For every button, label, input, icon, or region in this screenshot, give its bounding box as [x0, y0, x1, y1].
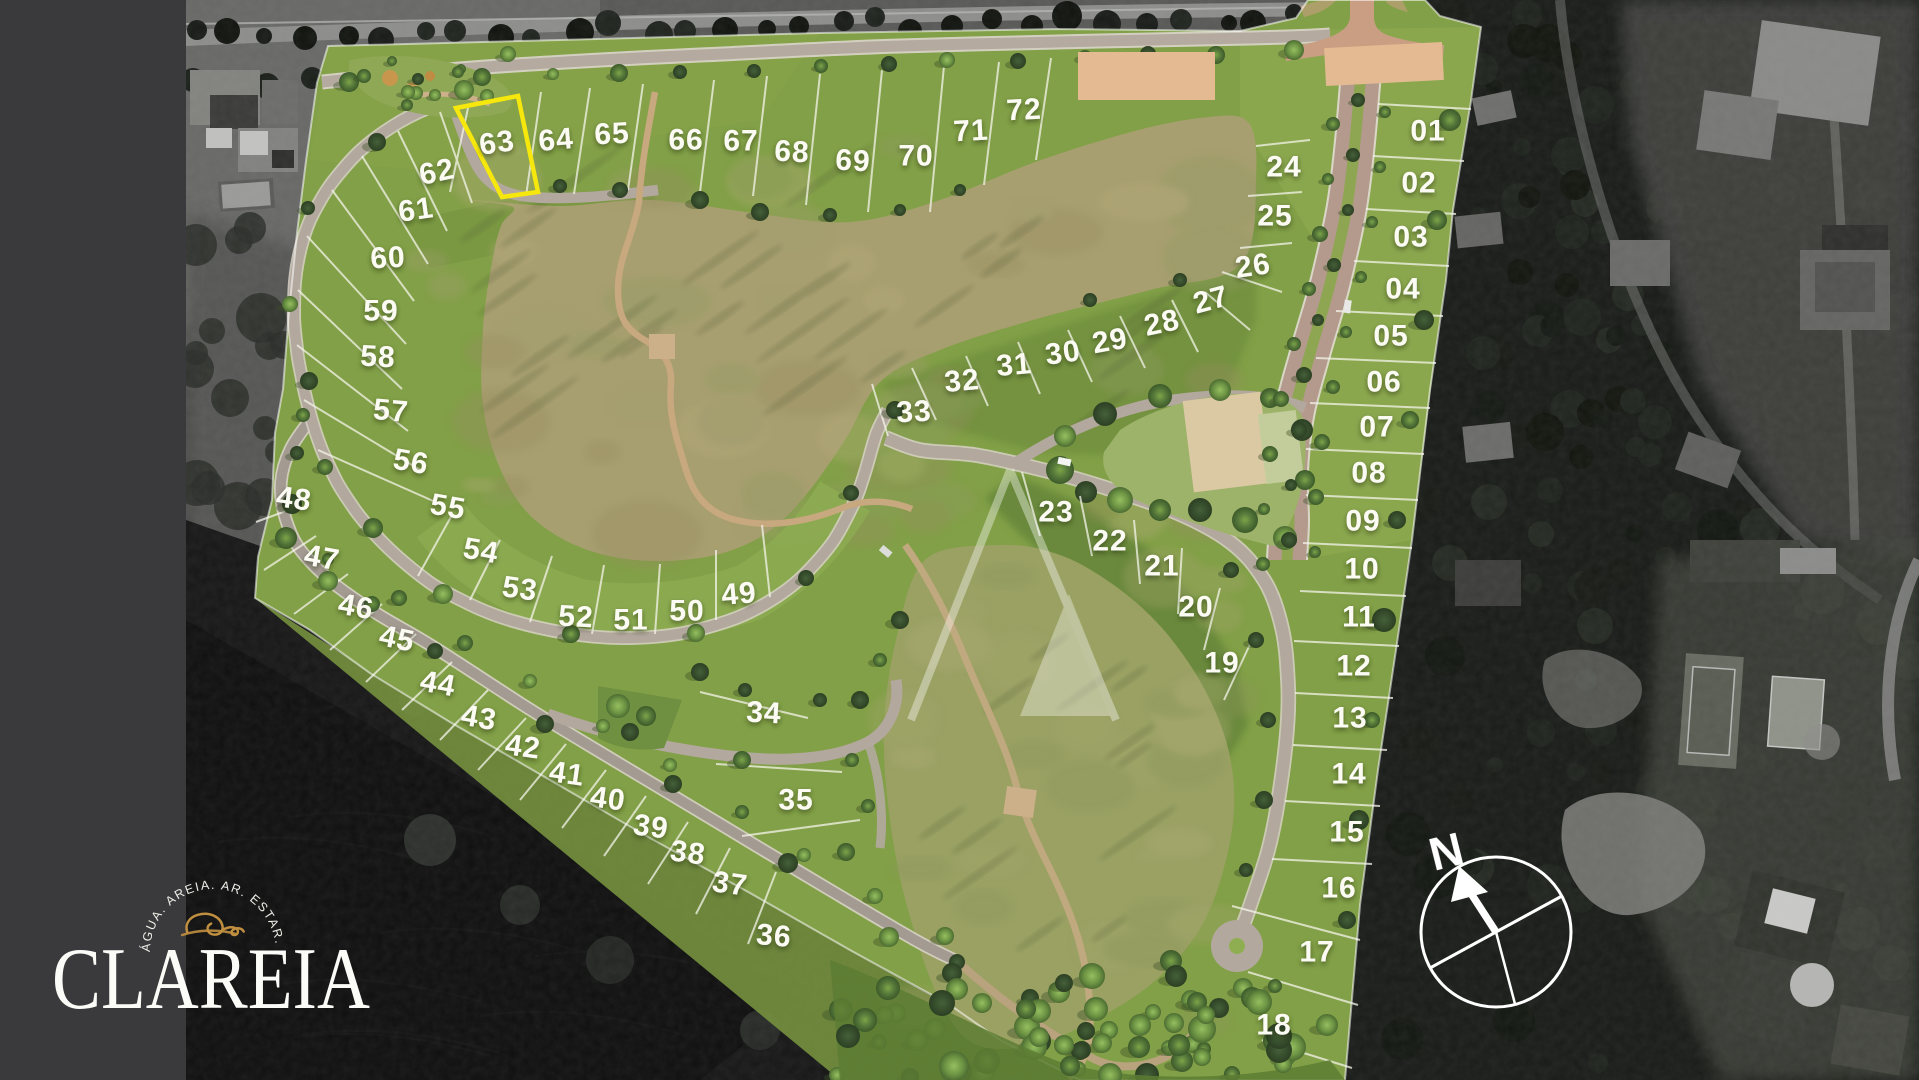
svg-text:04: 04	[1385, 273, 1420, 306]
svg-text:58: 58	[359, 340, 396, 375]
svg-text:67: 67	[723, 125, 758, 158]
svg-text:13: 13	[1332, 702, 1367, 735]
svg-text:01: 01	[1410, 115, 1445, 148]
svg-text:25: 25	[1257, 200, 1292, 233]
svg-text:40: 40	[588, 780, 628, 818]
svg-text:03: 03	[1393, 221, 1428, 254]
svg-text:15: 15	[1329, 816, 1364, 849]
svg-text:02: 02	[1401, 167, 1436, 200]
svg-text:72: 72	[1005, 93, 1042, 128]
svg-text:17: 17	[1299, 936, 1334, 969]
svg-text:46: 46	[336, 588, 377, 627]
svg-text:33: 33	[895, 395, 932, 430]
svg-text:48: 48	[274, 480, 314, 518]
svg-text:21: 21	[1144, 550, 1179, 583]
svg-text:49: 49	[720, 576, 758, 612]
svg-text:29: 29	[1090, 322, 1131, 361]
svg-text:41: 41	[547, 755, 587, 793]
svg-text:20: 20	[1178, 591, 1213, 624]
svg-text:05: 05	[1373, 320, 1408, 353]
svg-text:16: 16	[1321, 872, 1356, 905]
svg-text:22: 22	[1092, 525, 1127, 558]
svg-text:63: 63	[477, 124, 517, 162]
svg-text:66: 66	[668, 124, 703, 157]
svg-text:31: 31	[995, 347, 1033, 383]
svg-text:43: 43	[459, 699, 500, 738]
svg-text:53: 53	[500, 570, 540, 608]
svg-text:54: 54	[461, 532, 502, 571]
svg-text:34: 34	[745, 696, 782, 731]
svg-text:11: 11	[1342, 601, 1376, 634]
svg-text:55: 55	[428, 488, 469, 527]
svg-text:39: 39	[631, 808, 671, 846]
svg-text:61: 61	[396, 191, 436, 229]
svg-text:12: 12	[1336, 650, 1371, 683]
svg-text:70: 70	[898, 140, 933, 173]
svg-text:19: 19	[1204, 647, 1239, 680]
svg-text:10: 10	[1344, 553, 1379, 586]
svg-text:56: 56	[391, 443, 432, 482]
svg-text:57: 57	[372, 393, 410, 429]
svg-text:37: 37	[710, 865, 750, 903]
svg-text:42: 42	[503, 728, 543, 766]
svg-text:23: 23	[1038, 496, 1073, 529]
svg-text:06: 06	[1366, 366, 1401, 399]
svg-text:30: 30	[1043, 334, 1083, 372]
svg-text:60: 60	[369, 241, 406, 276]
svg-text:08: 08	[1351, 457, 1386, 490]
svg-text:44: 44	[418, 665, 459, 704]
svg-text:47: 47	[302, 539, 343, 578]
svg-text:38: 38	[668, 834, 708, 872]
svg-text:71: 71	[952, 114, 989, 149]
svg-text:18: 18	[1256, 1009, 1291, 1042]
svg-text:32: 32	[943, 363, 981, 399]
svg-text:35: 35	[778, 784, 813, 817]
svg-text:59: 59	[363, 295, 398, 328]
svg-text:68: 68	[773, 135, 810, 170]
svg-text:09: 09	[1345, 505, 1380, 538]
svg-text:07: 07	[1359, 411, 1394, 444]
svg-text:52: 52	[557, 600, 594, 635]
svg-text:CLAREIA: CLAREIA	[52, 931, 370, 1028]
svg-text:36: 36	[755, 918, 793, 954]
svg-text:26: 26	[1233, 247, 1273, 285]
svg-text:50: 50	[669, 595, 704, 628]
svg-text:64: 64	[537, 122, 575, 158]
svg-text:65: 65	[593, 117, 630, 152]
svg-text:14: 14	[1331, 758, 1366, 791]
svg-text:51: 51	[613, 604, 648, 637]
svg-text:24: 24	[1266, 151, 1301, 184]
svg-text:69: 69	[834, 144, 871, 179]
